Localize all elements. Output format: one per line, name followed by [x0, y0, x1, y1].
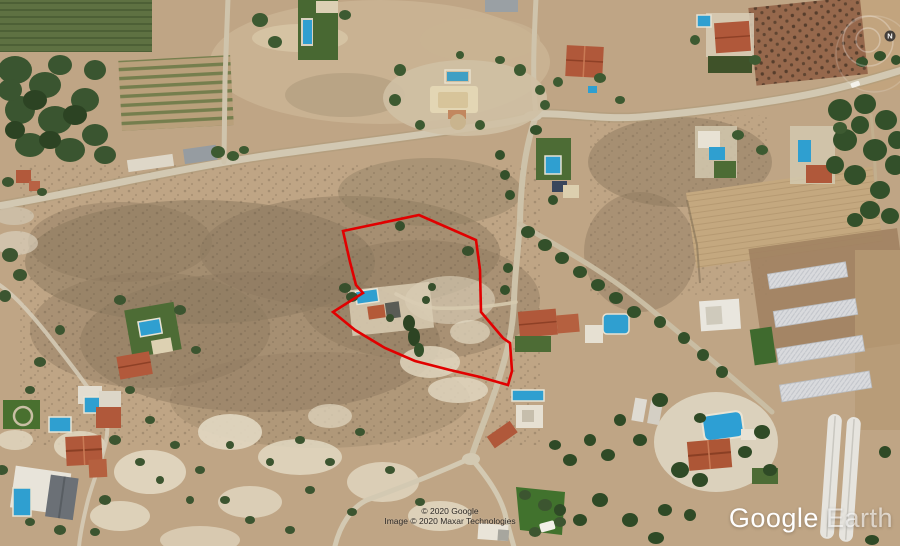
copyright-attribution: © 2020 Google Image © 2020 Maxar Technol…	[384, 506, 515, 526]
north-label: N	[887, 32, 892, 41]
google-earth-viewport[interactable]: N © 2020 Google Image © 2020 Maxar Techn…	[0, 0, 900, 546]
satellite-map[interactable]: N	[0, 0, 900, 546]
watermark-google: Google	[729, 503, 819, 533]
copyright-line1: © 2020 Google	[384, 506, 515, 516]
watermark-earth: Earth	[826, 503, 893, 533]
copyright-line2: Image © 2020 Maxar Technologies	[384, 516, 515, 526]
google-earth-watermark: GoogleEarth	[729, 503, 893, 534]
